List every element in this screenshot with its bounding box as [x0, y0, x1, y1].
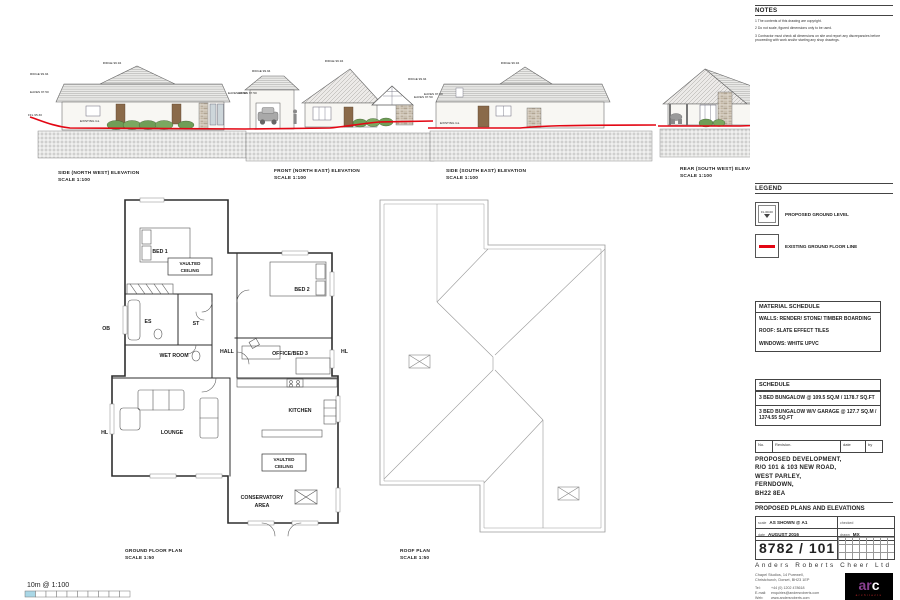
window — [86, 106, 100, 116]
schedule: SCHEDULE 3 BED BUNGALOW @ 109.5 SQ.M / 1… — [755, 379, 881, 426]
room-label-hall: HALL — [220, 349, 235, 355]
checked-label: checked — [840, 521, 853, 525]
address-line: FERNDOWN, — [755, 481, 893, 489]
rev-col-date: date — [841, 441, 866, 452]
elevation-scale: SCALE 1:100 — [680, 173, 712, 179]
legend-label: EXISTING GROUND FLOOR LINE — [785, 244, 857, 249]
level-label: EAVES 97.50 — [30, 90, 49, 94]
legend-section: LEGEND FL 00.00 PROPOSED GROUND LEVEL EX… — [755, 183, 893, 258]
project-address: PROPOSED DEVELOPMENT, R/O 101 & 103 NEW … — [755, 456, 893, 498]
material-schedule: MATERIAL SCHEDULE WALLS: RENDER/ STONE/ … — [755, 301, 881, 352]
material-line: WINDOWS: WHITE UPVC — [759, 341, 877, 347]
title-block-sidebar: NOTES 1 The contents of this drawing are… — [753, 0, 897, 600]
room-label-bed2: BED 2 — [294, 287, 309, 293]
note-item: 2 Do not scale, figured dimensions only … — [755, 26, 893, 30]
room-label-conservatory: AREA — [255, 503, 270, 509]
room-label-lounge: LOUNGE — [161, 430, 184, 436]
notes-section: NOTES 1 The contents of this drawing are… — [755, 5, 893, 42]
notes-title: NOTES — [755, 6, 893, 16]
room-label-hl: HL — [101, 430, 109, 436]
room-label-vaulted: CEILING — [181, 268, 200, 273]
stone-pillar — [199, 103, 208, 129]
material-line: WALLS: RENDER/ STONE/ TIMBER BOARDING — [759, 316, 877, 322]
level-label: FFL 95.30 — [28, 113, 42, 117]
drawing-title: PROPOSED PLANS AND ELEVATIONS — [755, 502, 893, 515]
scale-cell: scale AS SHOWN @ A1 — [756, 517, 838, 529]
rev-col-revision: Revision. — [773, 441, 841, 452]
level-label: EXISTING GL — [440, 121, 460, 125]
room-label-vaulted: VAULTED — [273, 457, 295, 462]
porch-post — [686, 104, 688, 125]
level-label: RIDGE 99.94 — [30, 72, 49, 76]
elevation-caption: FRONT (NORTH EAST) ELEVATION — [274, 168, 360, 174]
roof-peak — [500, 67, 552, 84]
ground-hatch — [660, 129, 750, 157]
room-label-st: ST — [193, 321, 200, 327]
plan-caption: ROOF PLAN — [400, 548, 430, 554]
elevation-side-north-west: RIDGE 99.94 EAVES 97.50 FFL 95.30 RIDGE … — [28, 61, 247, 183]
level-marker-icon — [764, 214, 770, 218]
rooflights — [409, 355, 579, 500]
elevation-caption: REAR (SOUTH WEST) ELEVATION — [680, 166, 750, 172]
room-label-vaulted: CEILING — [275, 464, 294, 469]
ground-hatch — [430, 131, 652, 161]
room-label-ob: OB — [102, 326, 110, 332]
note-item: 1 The contents of this drawing are copyr… — [755, 19, 893, 23]
elevation-scale: SCALE 1:100 — [58, 177, 90, 183]
web-label: Web: — [755, 596, 771, 600]
material-line: ROOF: SLATE EFFECT TILES — [759, 328, 877, 334]
company-address: Christchurch, Dorset, BH23 1EP — [755, 578, 845, 583]
stone-pillar — [527, 108, 541, 127]
checked-cell: checked — [838, 517, 894, 529]
room-label-hl: HL — [341, 349, 349, 355]
level-label: EAVES 97.50 — [238, 91, 257, 95]
schedule-row: 3 BED BUNGALOW @ 109.5 SQ.M / 1178.7 SQ.… — [756, 391, 880, 405]
schedule-row: 3 BED BUNGALOW W/V GARAGE @ 127.7 SQ.M /… — [756, 405, 880, 425]
logo-c: c — [872, 577, 880, 593]
ground-hatch — [246, 133, 434, 161]
revision-grid — [837, 537, 894, 559]
schedule-title: SCHEDULE — [756, 380, 880, 391]
elevation-front-north-east: RIDGE 99.94 EAVES 97.50 RIDGE 99.94 RIDG… — [238, 59, 434, 181]
ground-floor-plan: BED 1 VAULTED CEILING ES ST OB WET ROOM … — [101, 198, 349, 561]
proposed-ground-level-symbol: FL 00.00 — [755, 202, 779, 226]
window — [218, 104, 224, 125]
rev-col-no: No. — [756, 441, 773, 452]
person-figure — [293, 110, 297, 125]
room-label-es: ES — [145, 319, 152, 325]
level-label: RIDGE 99.94 — [501, 61, 520, 65]
logo-subtitle: architects — [856, 593, 883, 597]
window — [313, 107, 331, 120]
room-label-kitchen: KITCHEN — [288, 408, 311, 414]
scale-bar-cell — [25, 591, 36, 597]
room-label-conservatory: CONSERVATORY — [241, 495, 284, 501]
wall — [436, 102, 604, 128]
address-line: R/O 101 & 103 NEW ROAD, — [755, 464, 893, 472]
note-item: 3 Contractor must check all dimensions o… — [755, 34, 893, 43]
level-label: RIDGE 99.94 — [408, 77, 427, 81]
contact-block: Chapel Studios, 14 Purewell, Christchurc… — [755, 573, 893, 600]
roof-hips-valleys — [384, 249, 605, 528]
garage-roof — [245, 76, 299, 90]
elevation-scale: SCALE 1:100 — [274, 175, 306, 181]
address-line: PROPOSED DEVELOPMENT, — [755, 456, 893, 464]
drawing-number: 8782 / 101 — [756, 537, 837, 559]
rev-col-by: by — [866, 441, 882, 452]
plan-scale: SCALE 1:50 — [125, 555, 154, 561]
scale-value: AS SHOWN @ A1 — [769, 520, 807, 525]
legend-item: EXISTING GROUND FLOOR LINE — [755, 234, 893, 258]
level-label: RIDGE 99.94 — [325, 59, 344, 63]
level-label: RIDGE 99.94 — [103, 61, 122, 65]
plan-scale: SCALE 1:50 — [400, 555, 429, 561]
room-label-office: OFFICE/BED 3 — [272, 351, 308, 357]
scale-bar: 10m @ 1:100 — [25, 582, 130, 597]
scale-bar-label: 10m @ 1:100 — [27, 582, 69, 589]
main-gable-roof — [302, 69, 381, 103]
legend-label: PROPOSED GROUND LEVEL — [785, 212, 849, 217]
arc-logo: arc architects — [845, 573, 893, 600]
front-door — [344, 107, 353, 127]
level-label: RIDGE 99.94 — [252, 69, 271, 73]
ground-hatch — [38, 131, 246, 158]
address-line: BH22 8EA — [755, 490, 893, 498]
red-line-icon — [759, 245, 775, 248]
revision-table-header: No. Revision. date by — [755, 440, 883, 453]
glazed-gable — [372, 86, 413, 105]
legend-title: LEGEND — [755, 184, 893, 194]
drawing-sheet: RIDGE 99.94 EAVES 97.50 FFL 95.30 RIDGE … — [0, 0, 900, 600]
window — [210, 104, 216, 125]
roof-plan — [380, 200, 605, 532]
external-walls — [112, 200, 338, 523]
elevation-caption: SIDE (SOUTH EAST) ELEVATION — [446, 168, 526, 174]
level-label: EXISTING GL — [80, 119, 100, 123]
room-label-wet-room: WET ROOM — [159, 353, 188, 359]
elevation-side-south-east: EAVES 97.50 RIDGE 99.94 EXISTING GL SIDE… — [424, 61, 656, 181]
elevation-scale: SCALE 1:100 — [446, 175, 478, 181]
room-label-bed1: BED 1 — [152, 249, 167, 255]
drawing-number-row: 8782 / 101 — [755, 536, 895, 560]
material-schedule-title: MATERIAL SCHEDULE — [756, 302, 880, 313]
drawing-canvas: RIDGE 99.94 EAVES 97.50 FFL 95.30 RIDGE … — [0, 0, 750, 600]
porch-post — [669, 104, 671, 125]
existing-ground-line-symbol — [755, 234, 779, 258]
legend-item: FL 00.00 PROPOSED GROUND LEVEL — [755, 202, 893, 226]
room-label-vaulted: VAULTED — [179, 261, 201, 266]
level-label: EAVES 97.50 — [424, 92, 443, 96]
elevation-rear-south-west: FFL 95.30 REAR (SOUTH WEST) ELEVATION SC… — [658, 69, 750, 179]
door — [478, 106, 489, 127]
roof-window — [456, 88, 463, 97]
roof-band — [56, 84, 230, 102]
plan-caption: GROUND FLOOR PLAN — [125, 548, 183, 554]
web-value: www.andersroberts.com — [771, 596, 810, 600]
company-name: Anders Roberts Cheer Ltd — [755, 562, 893, 569]
address-line: WEST PARLEY, — [755, 473, 893, 481]
timber-panel — [172, 104, 181, 124]
scale-label: scale — [758, 521, 766, 525]
logo-ar: ar — [858, 577, 871, 593]
roof-peak — [100, 66, 175, 84]
elevation-caption: SIDE (NORTH WEST) ELEVATION — [58, 170, 140, 176]
